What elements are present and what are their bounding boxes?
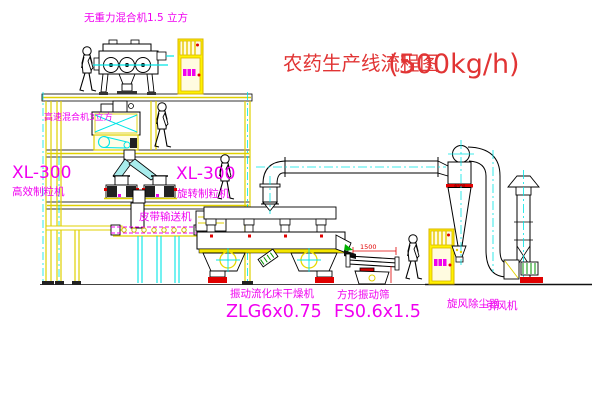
label-high-speed-mixer: 高速混合机3立方: [44, 111, 113, 123]
drawing-title: 农药生产线流程图 (500kg/h): [283, 49, 520, 80]
label-screen-model: FS0.6x1.5: [334, 302, 421, 322]
label-dryer-name: 振动流化床干燥机: [230, 287, 314, 300]
label-fan: 引风机: [486, 299, 518, 312]
label-screen-name: 方形振动筛: [337, 288, 390, 301]
induced-draft-fan-drawing: [504, 260, 543, 283]
title-capacity: (500kg/h): [388, 49, 520, 80]
floor-level-2: [46, 150, 250, 157]
granulator-right-drawing: [142, 176, 177, 199]
vibrating-screen-drawing: [344, 247, 399, 284]
person-figure-level2: [155, 103, 171, 147]
control-cabinet-ground: [429, 229, 454, 284]
label-belt-conveyor: 皮带输送机: [139, 210, 192, 223]
process-flow-diagram: Φ500 无重力混合机1.5 立方: [0, 0, 600, 403]
fan-base: [520, 277, 543, 283]
high-speed-mixer-drawing: [92, 101, 140, 150]
person-figure-top: [80, 47, 96, 91]
label-granulator-left-model: XL-300: [12, 163, 71, 183]
gravity-mixer-drawing: [93, 40, 174, 95]
control-cabinet-top: [178, 39, 203, 94]
fluid-bed-dryer-drawing: [196, 202, 353, 283]
person-figure-ground: [406, 235, 422, 279]
label-granulator-right-name: 旋转制粒机: [177, 187, 230, 200]
screen-length-dim: 1500: [360, 243, 377, 251]
label-gravity-mixer: 无重力混合机1.5 立方: [84, 11, 188, 24]
cyclone-outlet-duct: [468, 147, 507, 277]
label-granulator-right-model: XL-300: [176, 164, 235, 184]
floor-level-1: [42, 94, 252, 101]
belt-conveyor-drawing: [111, 225, 203, 283]
cad-drawing-canvas: Φ500 无重力混合机1.5 立方: [0, 0, 600, 403]
label-granulator-left-name: 高效制粒机: [12, 185, 65, 198]
label-dryer-model: ZLG6x0.75: [226, 302, 322, 322]
exhaust-duct-drawing: [256, 157, 448, 214]
